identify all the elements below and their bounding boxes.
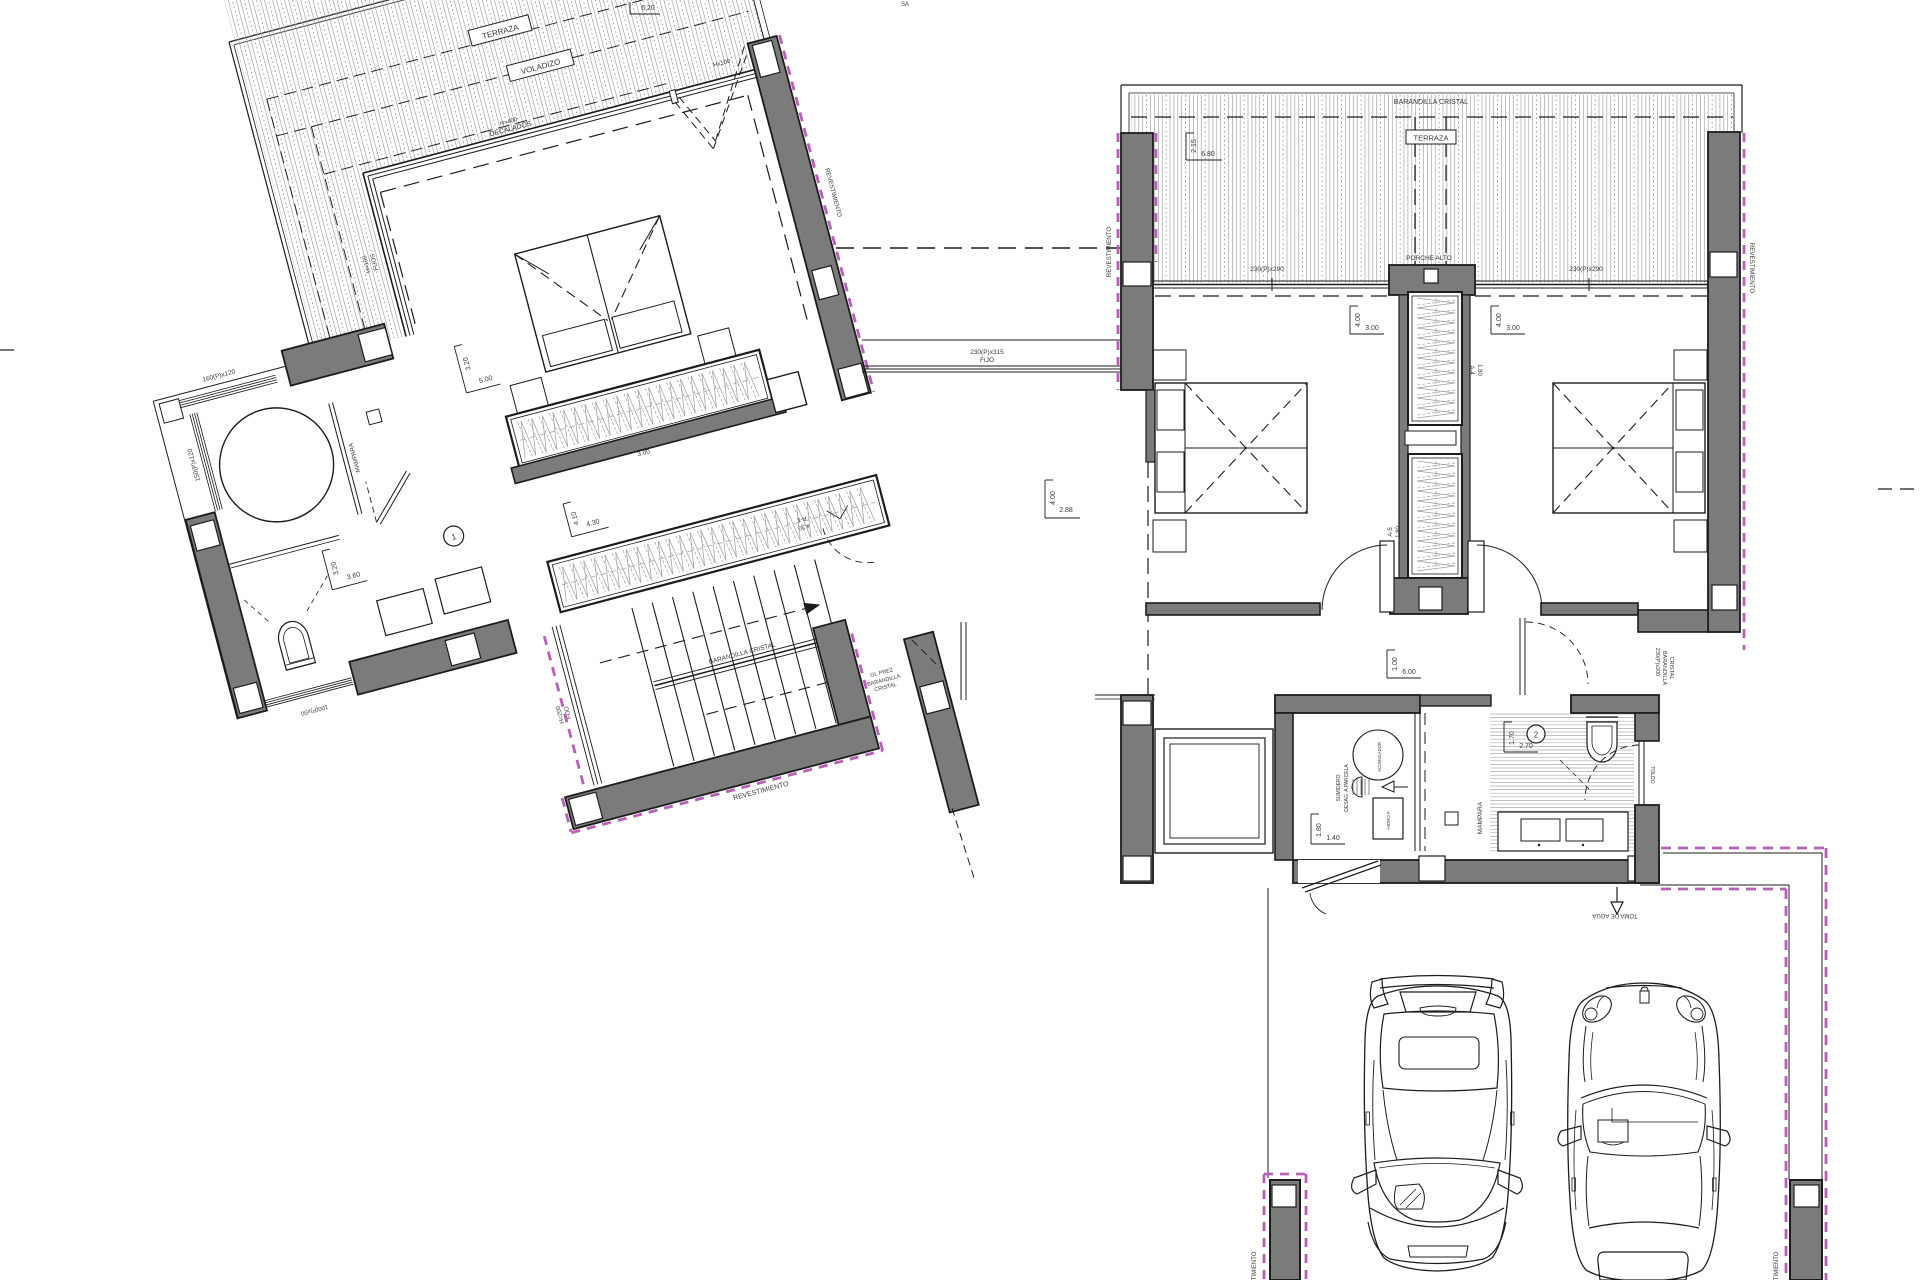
svg-text:1.80: 1.80 (1396, 526, 1402, 538)
svg-text:REVESTIMIENTO: REVESTIMIENTO (1252, 1251, 1258, 1280)
svg-text:3.00: 3.00 (1365, 325, 1379, 332)
svg-text:4.00: 4.00 (1355, 313, 1362, 327)
svg-text:2.70: 2.70 (1519, 743, 1533, 750)
svg-text:MAMPARA: MAMPARA (1477, 801, 1484, 834)
svg-text:2.88: 2.88 (1059, 507, 1073, 514)
svg-text:BARANDILLA: BARANDILLA (1661, 651, 1667, 686)
svg-text:A-5: A-5 (1388, 527, 1394, 537)
svg-text:CRISTAL: CRISTAL (1668, 657, 1674, 680)
svg-text:REVESTIMIENTO: REVESTIMIENTO (1748, 243, 1755, 294)
svg-text:TERRAZA: TERRAZA (1413, 134, 1448, 143)
svg-text:PORCHE ALTO: PORCHE ALTO (1406, 255, 1452, 262)
svg-text:1.70: 1.70 (1509, 731, 1516, 745)
svg-text:4.00: 4.00 (1050, 491, 1057, 505)
svg-text:230(P)x200: 230(P)x200 (1654, 648, 1660, 676)
svg-text:1.00: 1.00 (1392, 657, 1399, 671)
svg-text:6.00: 6.00 (1402, 669, 1416, 676)
svg-text:ACUMULADOR: ACUMULADOR (1377, 742, 1382, 772)
svg-text:4.00: 4.00 (1496, 313, 1503, 327)
svg-text:BARANDILLA CRISTAL: BARANDILLA CRISTAL (1394, 99, 1468, 106)
svg-text:2: 2 (1534, 731, 1539, 740)
svg-text:SUMIDERO: SUMIDERO (1336, 774, 1342, 801)
svg-text:A-4: A-4 (1468, 365, 1474, 375)
svg-text:TOMA DE AGUA: TOMA DE AGUA (1592, 912, 1637, 918)
svg-text:DESAG. A PARCELA: DESAG. A PARCELA (1344, 764, 1350, 812)
svg-text:FIJO: FIJO (980, 357, 994, 364)
svg-text:6.20: 6.20 (641, 5, 655, 12)
svg-text:REVESTIMIENTO: REVESTIMIENTO (1106, 227, 1113, 278)
svg-text:1.80: 1.80 (1476, 364, 1482, 376)
svg-text:TOLDO: TOLDO (1649, 766, 1655, 783)
svg-text:230(P)x290: 230(P)x290 (1250, 266, 1284, 273)
svg-text:2.15: 2.15 (1191, 139, 1198, 153)
svg-text:6.80: 6.80 (1201, 151, 1215, 158)
svg-text:HIDRO F.: HIDRO F. (1386, 810, 1391, 829)
svg-text:REVESTIMIENTO: REVESTIMIENTO (1774, 1251, 1780, 1280)
svg-text:1.80: 1.80 (1316, 823, 1323, 837)
svg-text:230(P)x315: 230(P)x315 (970, 349, 1004, 356)
svg-text:SA: SA (901, 2, 909, 8)
svg-text:3.00: 3.00 (1506, 325, 1520, 332)
svg-text:1.40: 1.40 (1326, 835, 1340, 842)
svg-text:230(P)x290: 230(P)x290 (1569, 266, 1603, 273)
